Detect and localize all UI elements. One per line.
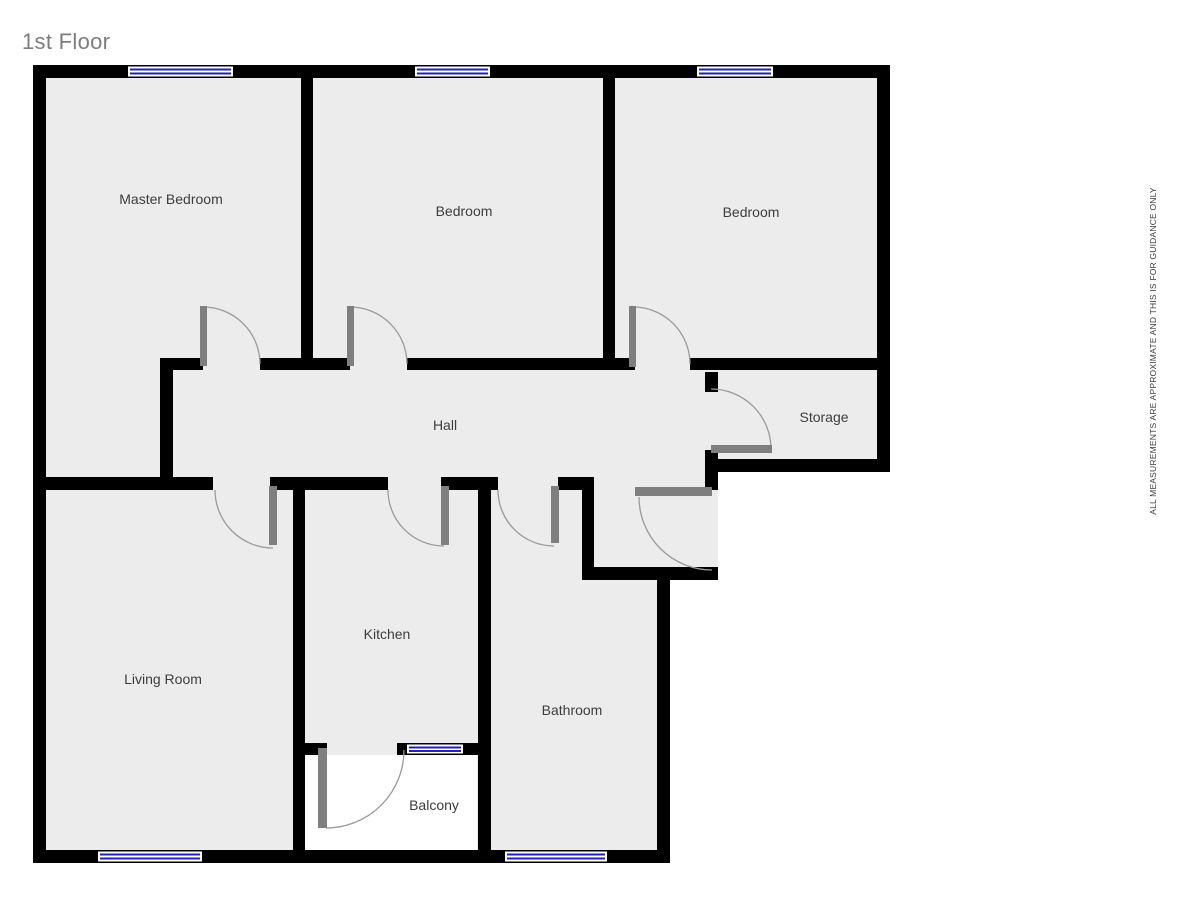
room-label-bedroom-3: Bedroom: [723, 204, 780, 220]
door-panel-kitchen: [441, 486, 449, 545]
room-label-balcony: Balcony: [409, 797, 459, 813]
window: [407, 743, 463, 755]
door-panel-bedroom-3: [629, 306, 636, 367]
room-label-bedroom-2: Bedroom: [436, 203, 493, 219]
room-label-hall: Hall: [433, 417, 457, 433]
door-panel-storage: [711, 445, 772, 453]
room-label-living-room: Living Room: [124, 671, 202, 687]
floorplan-drawing: [0, 0, 1192, 900]
door-panel-living-room: [269, 486, 277, 545]
disclaimer-text: ALL MEASUREMENTS ARE APPROXIMATE AND THI…: [1148, 187, 1158, 515]
door-panel-entrance: [635, 487, 712, 496]
page-title: 1st Floor: [22, 29, 110, 55]
room-label-bathroom: Bathroom: [542, 702, 603, 718]
door-panel-bathroom: [551, 486, 559, 543]
door-panel-bedroom-2: [347, 306, 354, 366]
window: [415, 65, 490, 78]
window: [128, 65, 233, 78]
door-panel-master-bedroom: [200, 306, 207, 366]
door-panel-balcony: [318, 748, 327, 828]
window: [697, 65, 773, 78]
floorplan-page: 1st Floor Master Bedroom Bedroom Bedroom…: [0, 0, 1192, 900]
room-label-master-bedroom: Master Bedroom: [119, 191, 222, 207]
window: [505, 850, 607, 863]
room-label-kitchen: Kitchen: [364, 626, 411, 642]
room-label-storage: Storage: [799, 409, 848, 425]
window: [98, 850, 202, 863]
